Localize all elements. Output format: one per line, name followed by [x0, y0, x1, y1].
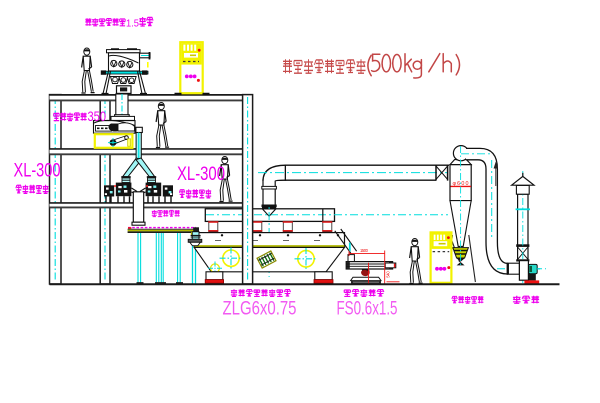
svg-text:1.5: 1.5 — [126, 17, 139, 29]
svg-text:FS0.6x1.5: FS0.6x1.5 — [337, 298, 398, 319]
svg-text:ZLG6x0.75: ZLG6x0.75 — [223, 298, 297, 319]
svg-text:1500: 1500 — [360, 248, 369, 253]
svg-text:540: 540 — [385, 271, 390, 278]
svg-text:350: 350 — [88, 109, 107, 124]
svg-text:XL-300: XL-300 — [177, 163, 225, 185]
svg-text:XL-300: XL-300 — [14, 160, 61, 182]
